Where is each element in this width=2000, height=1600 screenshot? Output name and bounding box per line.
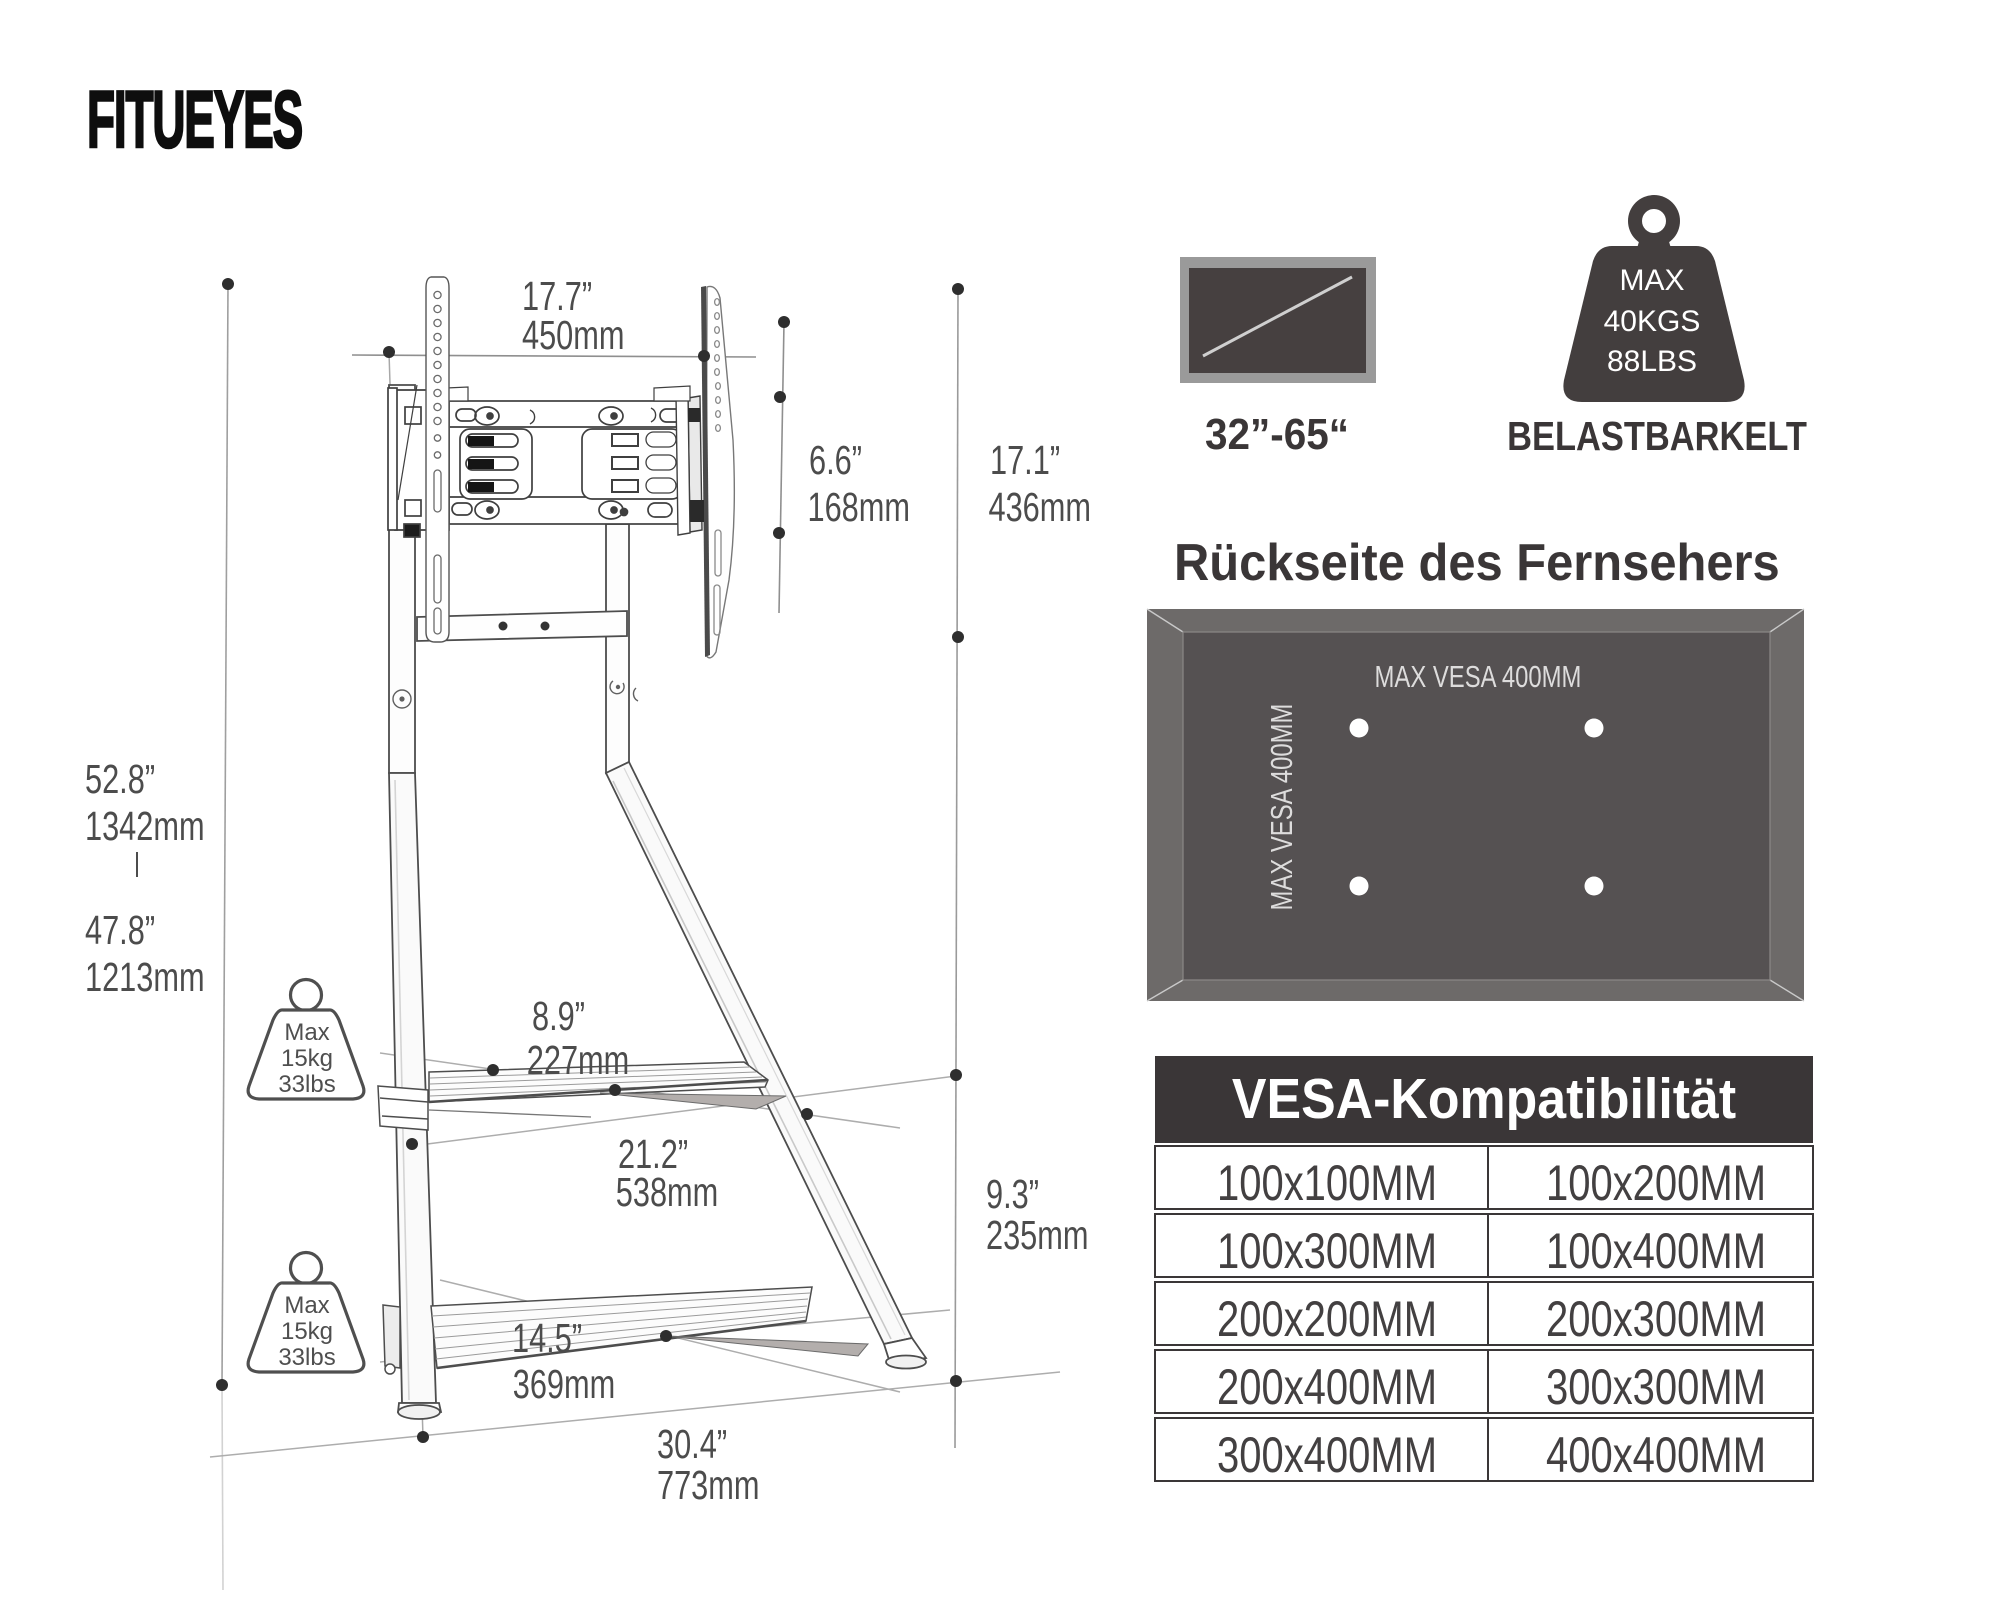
svg-text:52.8”: 52.8” bbox=[85, 756, 155, 802]
svg-text:538mm: 538mm bbox=[616, 1169, 718, 1215]
svg-text:200x300MM: 200x300MM bbox=[1546, 1291, 1766, 1347]
svg-text:100x100MM: 100x100MM bbox=[1217, 1155, 1437, 1211]
svg-text:773mm: 773mm bbox=[657, 1462, 759, 1508]
svg-text:100x200MM: 100x200MM bbox=[1546, 1155, 1766, 1211]
svg-text:33lbs: 33lbs bbox=[278, 1071, 335, 1098]
svg-text:15kg: 15kg bbox=[281, 1318, 333, 1345]
svg-text:MAX: MAX bbox=[1619, 264, 1684, 297]
svg-text:369mm: 369mm bbox=[513, 1361, 615, 1407]
svg-text:33lbs: 33lbs bbox=[278, 1344, 335, 1371]
svg-text:1342mm: 1342mm bbox=[85, 803, 205, 849]
svg-text:235mm: 235mm bbox=[986, 1212, 1088, 1258]
svg-text:300x400MM: 300x400MM bbox=[1217, 1427, 1437, 1483]
svg-text:100x300MM: 100x300MM bbox=[1217, 1223, 1437, 1279]
svg-text:Max: Max bbox=[284, 1019, 329, 1046]
svg-text:436mm: 436mm bbox=[989, 484, 1091, 530]
svg-text:15kg: 15kg bbox=[281, 1045, 333, 1072]
svg-text:100x400MM: 100x400MM bbox=[1546, 1223, 1766, 1279]
svg-text:BELASTBARKELT: BELASTBARKELT bbox=[1507, 414, 1807, 459]
svg-text:300x300MM: 300x300MM bbox=[1546, 1359, 1766, 1415]
svg-text:VESA-Kompatibilität: VESA-Kompatibilität bbox=[1232, 1067, 1736, 1131]
svg-text:6.6”: 6.6” bbox=[809, 437, 862, 483]
svg-text:8.9”: 8.9” bbox=[532, 993, 585, 1039]
svg-text:227mm: 227mm bbox=[527, 1037, 629, 1083]
svg-text:Max: Max bbox=[284, 1292, 329, 1319]
svg-text:17.1”: 17.1” bbox=[990, 437, 1060, 483]
svg-text:400x400MM: 400x400MM bbox=[1546, 1427, 1766, 1483]
svg-text:MAX VESA 400MM: MAX VESA 400MM bbox=[1264, 704, 1299, 911]
svg-text:MAX VESA 400MM: MAX VESA 400MM bbox=[1375, 659, 1582, 694]
svg-text:168mm: 168mm bbox=[808, 484, 910, 530]
svg-text:200x200MM: 200x200MM bbox=[1217, 1291, 1437, 1347]
svg-text:FITUEYES: FITUEYES bbox=[87, 73, 302, 164]
svg-text:40KGS: 40KGS bbox=[1604, 305, 1701, 338]
svg-text:14.5”: 14.5” bbox=[512, 1315, 582, 1361]
svg-text:30.4”: 30.4” bbox=[657, 1421, 727, 1467]
svg-text:200x400MM: 200x400MM bbox=[1217, 1359, 1437, 1415]
svg-text:9.3”: 9.3” bbox=[986, 1171, 1039, 1217]
svg-text:88LBS: 88LBS bbox=[1607, 345, 1697, 378]
svg-text:1213mm: 1213mm bbox=[85, 954, 205, 1000]
svg-text:450mm: 450mm bbox=[522, 312, 624, 358]
svg-text:32”-65“: 32”-65“ bbox=[1205, 409, 1349, 458]
svg-text:47.8”: 47.8” bbox=[85, 907, 155, 953]
svg-text:Rückseite des Fernsehers: Rückseite des Fernsehers bbox=[1174, 533, 1780, 592]
